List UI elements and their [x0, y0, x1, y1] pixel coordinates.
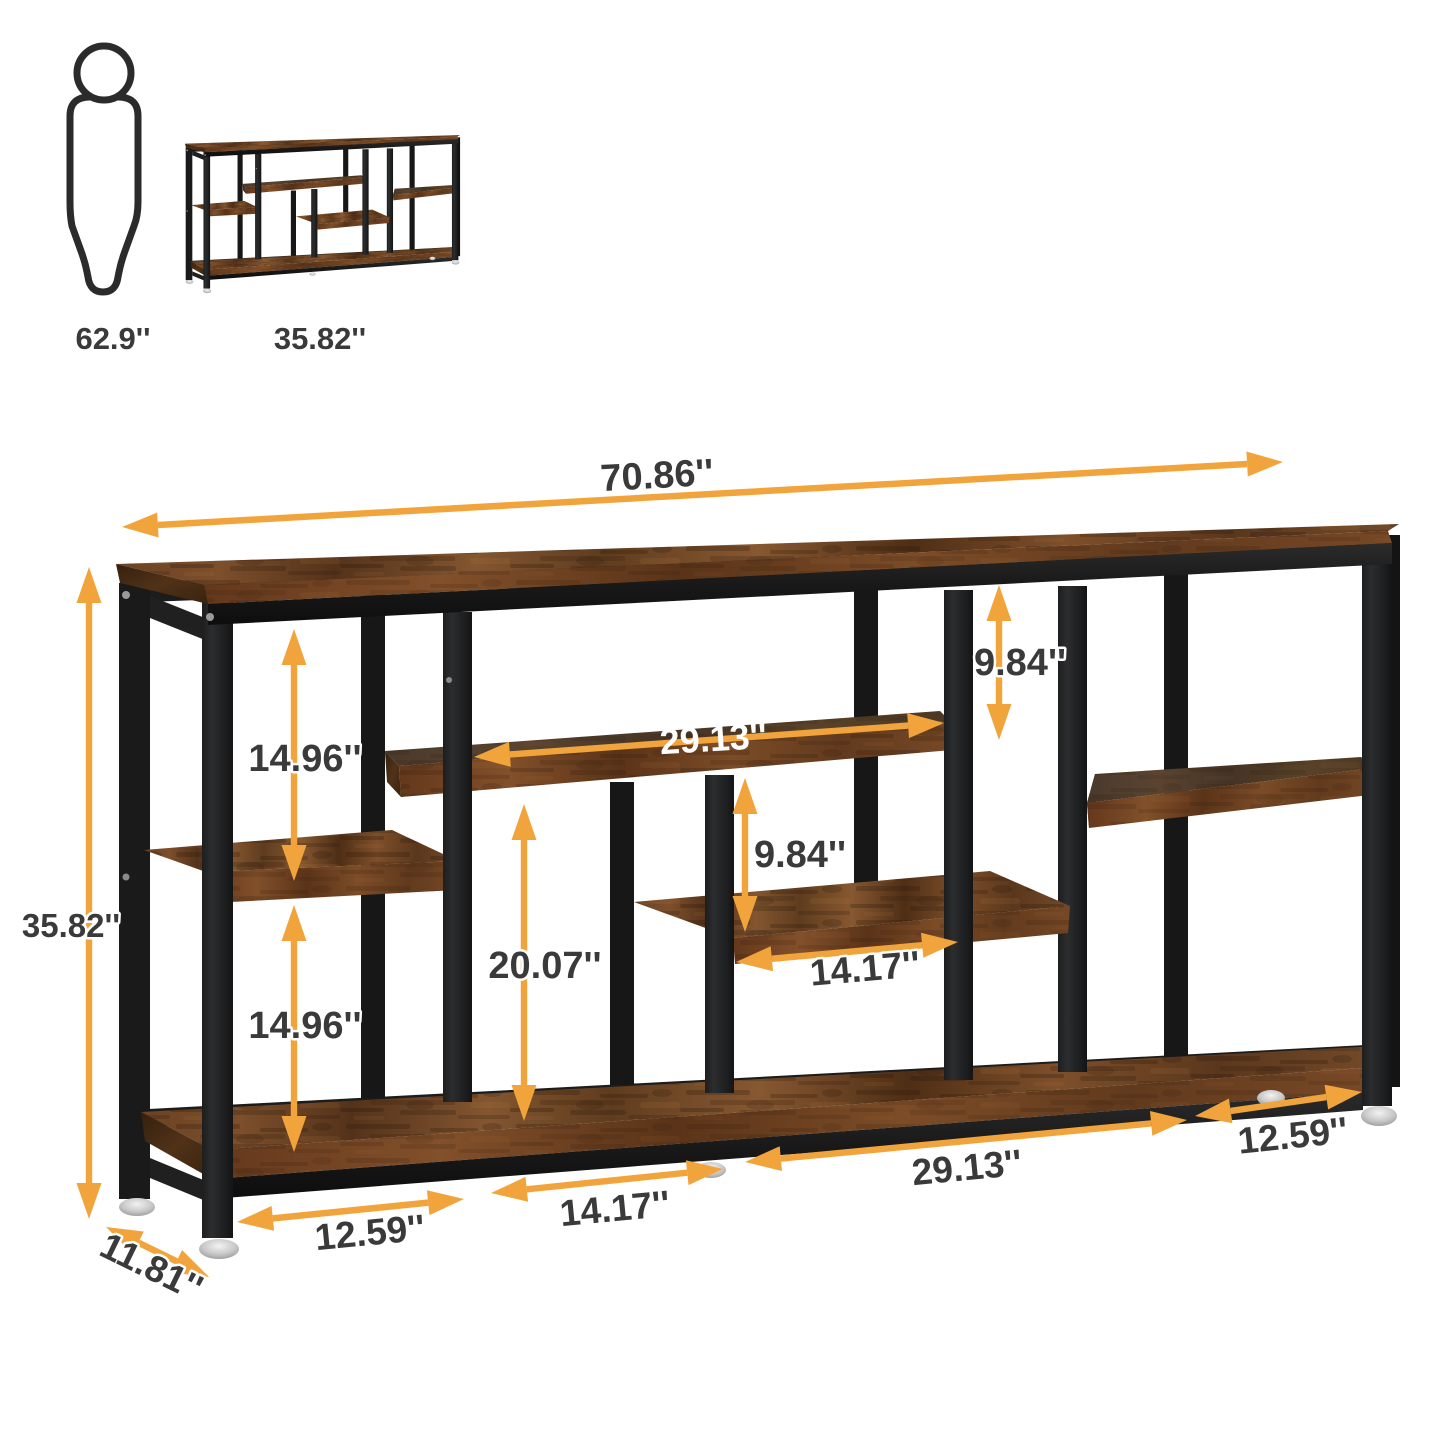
svg-text:29.13'': 29.13''	[910, 1142, 1024, 1193]
svg-text:14.96'': 14.96''	[248, 738, 361, 780]
svg-text:14.17'': 14.17''	[808, 943, 921, 993]
svg-text:35.82'': 35.82''	[22, 907, 120, 944]
svg-text:62.9'': 62.9''	[75, 321, 150, 356]
svg-text:14.96'': 14.96''	[248, 1005, 361, 1047]
svg-text:9.84'': 9.84''	[974, 642, 1066, 684]
svg-text:20.07'': 20.07''	[488, 945, 601, 987]
svg-text:70.86'': 70.86''	[599, 452, 714, 500]
svg-text:29.13'': 29.13''	[658, 715, 768, 762]
svg-text:14.17'': 14.17''	[558, 1183, 672, 1234]
svg-text:9.84'': 9.84''	[754, 834, 846, 876]
svg-text:35.82'': 35.82''	[274, 321, 366, 356]
svg-text:11.81'': 11.81''	[94, 1225, 209, 1309]
